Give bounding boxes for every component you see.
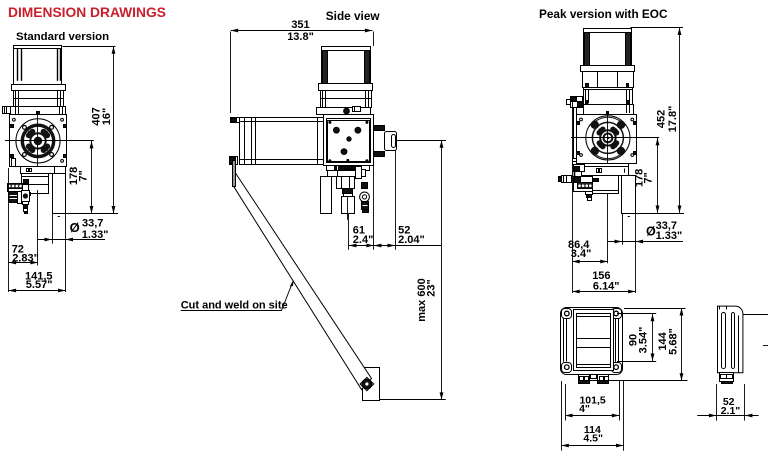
svg-text:2.04": 2.04" bbox=[398, 234, 425, 246]
svg-text:4.5": 4.5" bbox=[583, 433, 603, 445]
svg-text:Ø: Ø bbox=[70, 220, 80, 235]
svg-text:5.57": 5.57" bbox=[26, 279, 53, 291]
svg-text:23": 23" bbox=[426, 279, 438, 296]
svg-text:6.14": 6.14" bbox=[593, 280, 620, 292]
svg-text:Standard version: Standard version bbox=[16, 31, 109, 43]
svg-text:Peak version with EOC: Peak version with EOC bbox=[539, 7, 668, 21]
svg-text:452: 452 bbox=[656, 110, 668, 128]
svg-text:17.8": 17.8" bbox=[667, 106, 679, 133]
svg-text:13.8": 13.8" bbox=[287, 31, 314, 43]
svg-text:4": 4" bbox=[579, 403, 590, 415]
svg-text:Cut and weld on site: Cut and weld on site bbox=[181, 300, 288, 312]
svg-text:Ø: Ø bbox=[646, 225, 656, 239]
svg-text:2.1": 2.1" bbox=[721, 405, 741, 417]
svg-text:3.4": 3.4" bbox=[571, 248, 592, 260]
svg-text:Side view: Side view bbox=[326, 9, 381, 23]
svg-text:3.54": 3.54" bbox=[638, 327, 650, 354]
svg-text:7": 7" bbox=[78, 170, 90, 181]
svg-text:DIMENSION DRAWINGS: DIMENSION DRAWINGS bbox=[8, 5, 166, 20]
svg-text:5.68": 5.68" bbox=[668, 328, 680, 355]
svg-text:33,7: 33,7 bbox=[82, 218, 103, 230]
svg-text:351: 351 bbox=[291, 19, 309, 31]
svg-text:16": 16" bbox=[101, 108, 113, 125]
svg-text:1.33": 1.33" bbox=[82, 229, 109, 241]
svg-text:1.33": 1.33" bbox=[656, 230, 683, 242]
svg-text:7": 7" bbox=[643, 172, 655, 183]
svg-text:2.4": 2.4" bbox=[353, 234, 374, 246]
